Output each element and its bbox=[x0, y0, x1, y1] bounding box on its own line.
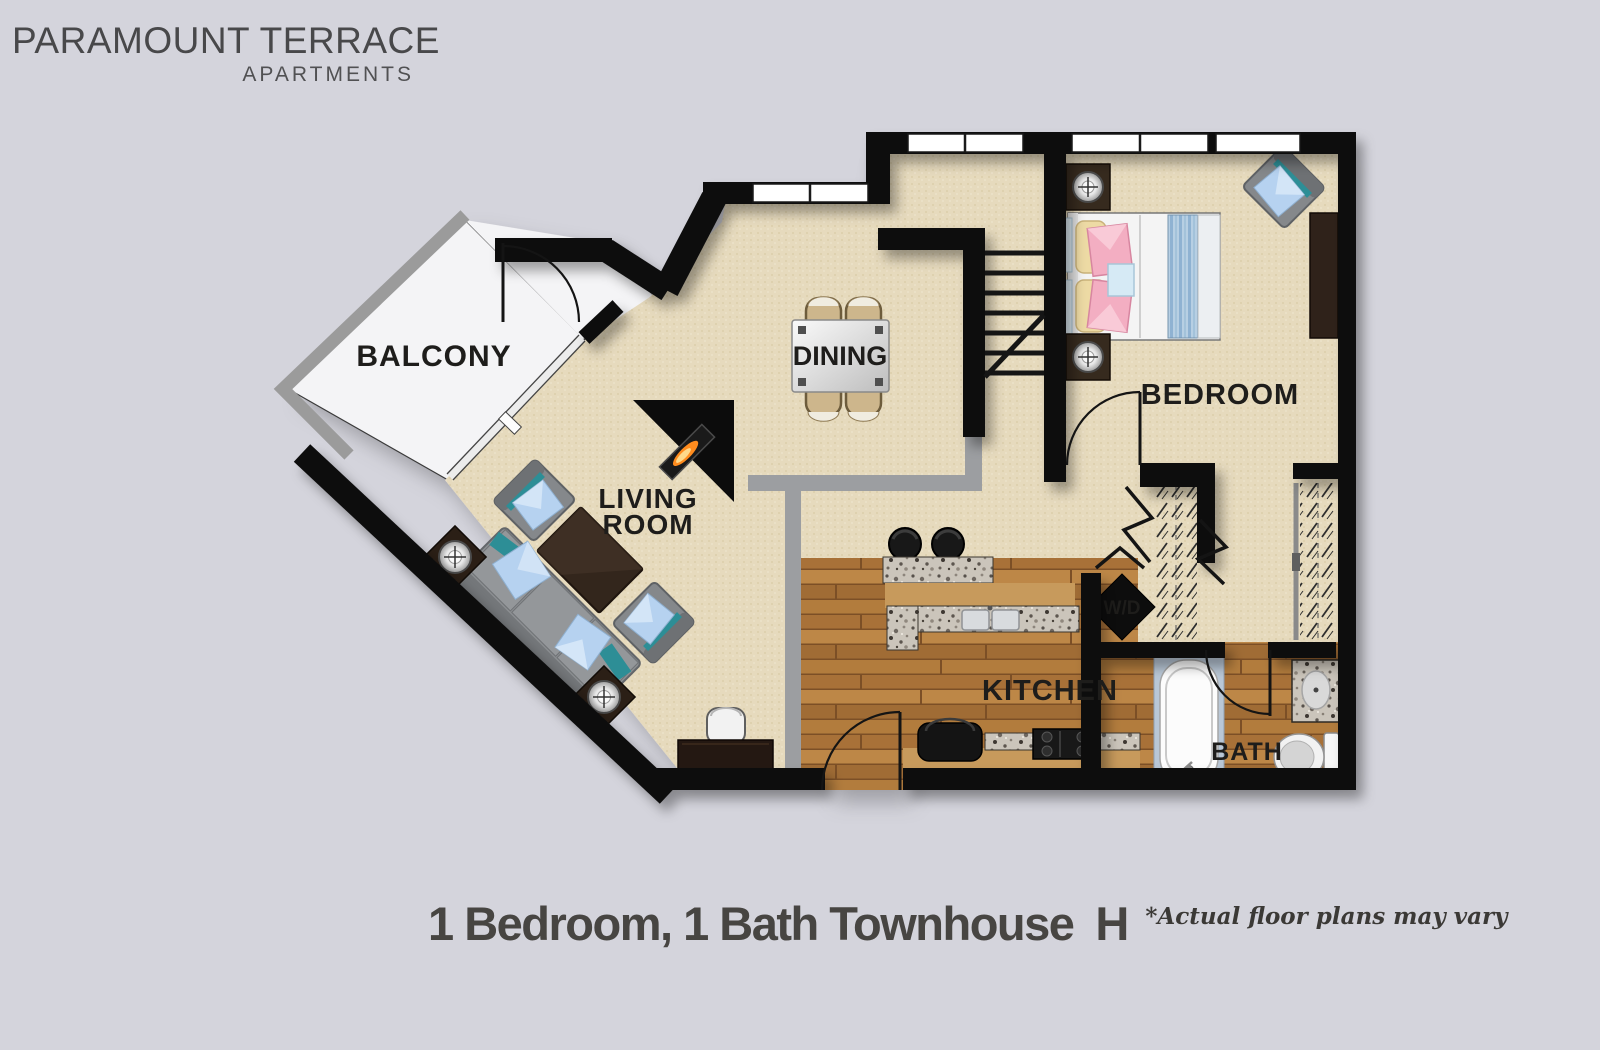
floor-plan-page: PARAMOUNT TERRACE APARTMENTS bbox=[0, 0, 1600, 1050]
window bbox=[1216, 134, 1300, 152]
window bbox=[753, 184, 868, 202]
dresser bbox=[1310, 213, 1338, 338]
floor-plan-canvas: W/D bbox=[0, 0, 1600, 1050]
window bbox=[1072, 134, 1208, 152]
floor-plan: W/D bbox=[0, 0, 1600, 1050]
nightstand-lamp bbox=[1066, 164, 1110, 210]
plan-disclaimer: *Actual floor plans may vary bbox=[1145, 903, 1507, 930]
counter-base bbox=[885, 583, 1075, 608]
kitchen-label: KITCHEN bbox=[982, 675, 1118, 707]
balcony-label: BALCONY bbox=[356, 340, 511, 373]
washer-dryer-label: W/D bbox=[1104, 598, 1141, 619]
vanity-sink bbox=[1292, 660, 1340, 722]
bed-pillow-blue bbox=[1108, 264, 1134, 296]
plan-caption: 1 Bedroom, 1 Bath Townhouse H *Actual fl… bbox=[428, 896, 1508, 951]
living-room-label-line2: ROOM bbox=[602, 509, 693, 540]
bar-counter-granite bbox=[883, 557, 993, 583]
bath-label: BATH bbox=[1211, 738, 1283, 766]
closet-left bbox=[1155, 485, 1197, 640]
bedroom-label: BEDROOM bbox=[1141, 379, 1299, 411]
dining-label: DINING bbox=[793, 341, 888, 371]
plan-letter: H bbox=[1095, 896, 1129, 951]
door-gap-wood-floor bbox=[825, 768, 903, 790]
bed bbox=[1064, 213, 1220, 340]
bar-stool bbox=[889, 528, 921, 560]
nightstand-lamp bbox=[1066, 334, 1110, 380]
plan-title: 1 Bedroom, 1 Bath Townhouse bbox=[428, 896, 1073, 951]
window bbox=[908, 134, 1023, 152]
bed-blanket bbox=[1168, 215, 1198, 338]
bar-stool bbox=[932, 528, 964, 560]
